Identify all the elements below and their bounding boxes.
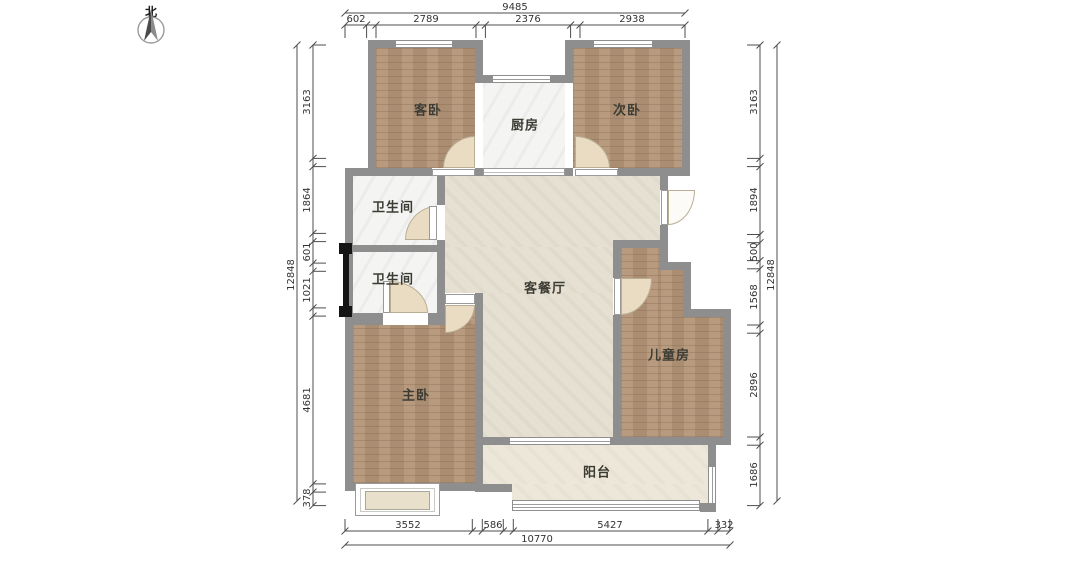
wall (618, 168, 690, 176)
bay-window-symbol (365, 491, 430, 510)
wall (353, 245, 437, 252)
floor-children-room (621, 248, 660, 437)
wall (437, 176, 445, 205)
dim-label: 10770 (521, 534, 553, 545)
door-leaf-guest-bedroom (432, 169, 475, 176)
wall (475, 437, 510, 445)
dim-label: 1686 (749, 462, 760, 487)
wall (437, 240, 445, 317)
dim-label: 601 (302, 242, 313, 261)
door-leaf-children-room (614, 278, 621, 315)
floor-living-dining (483, 293, 613, 437)
dim-label: 3163 (302, 89, 313, 114)
dim-label: 1894 (749, 187, 760, 212)
wall (428, 313, 445, 325)
floor-plan-canvas: 客卧 厨房 次卧 卫生间 卫生间 客餐厅 主卧 儿童房 阳台 北 9485 60… (0, 0, 1074, 576)
dim-label: 2789 (413, 14, 438, 25)
dim-label: 2376 (515, 14, 540, 25)
room-label-children-room: 儿童房 (648, 345, 690, 364)
wall (660, 225, 668, 248)
entry-door-icon (339, 306, 352, 317)
room-label-second-bedroom: 次卧 (613, 100, 641, 119)
wall (610, 437, 731, 445)
compass-north-label: 北 (145, 4, 157, 19)
door-leaf-living-east (661, 190, 668, 225)
floor-children-room (683, 317, 723, 437)
window-symbol (510, 437, 610, 445)
wall (475, 293, 483, 445)
dim-label: 12848 (766, 259, 777, 291)
dim-label: 5427 (597, 520, 622, 531)
room-label-master-bedroom: 主卧 (402, 385, 430, 404)
dim-label: 500 (749, 242, 760, 261)
door-leaf-master-bedroom (445, 294, 475, 304)
room-label-kitchen: 厨房 (511, 115, 539, 134)
wall (682, 48, 690, 176)
wall (368, 48, 376, 176)
wall (565, 168, 573, 176)
floor-master-bedroom (353, 325, 475, 483)
dim-label: 1021 (302, 277, 313, 302)
dim-label: 3552 (395, 520, 420, 531)
dim-label: 1864 (302, 187, 313, 212)
room-label-bathroom-upper: 卫生间 (372, 197, 414, 216)
entry-door-icon (343, 253, 349, 306)
door-swing-living-east (668, 190, 695, 225)
wall (723, 309, 731, 445)
wall (345, 483, 355, 491)
room-label-guest-bedroom: 客卧 (414, 100, 442, 119)
compass-icon: 北 (138, 4, 164, 43)
dim-label: 378 (302, 488, 313, 507)
room-label-living-dining: 客餐厅 (524, 278, 566, 297)
wall (660, 176, 668, 190)
room-label-balcony: 阳台 (583, 462, 611, 481)
wall (700, 503, 716, 512)
dim-label: 4681 (302, 387, 313, 412)
window-symbol (512, 500, 700, 511)
dim-label: 332 (714, 520, 733, 531)
dim-label: 2938 (619, 14, 644, 25)
window-symbol (594, 40, 652, 48)
wall (475, 168, 483, 176)
wall (475, 484, 512, 492)
window-symbol (708, 467, 716, 503)
wall (613, 248, 621, 278)
floor-living-dining (445, 176, 660, 247)
wall (345, 176, 353, 491)
dim-label: 2896 (749, 372, 760, 397)
dim-label: 12848 (286, 259, 297, 291)
sliding-door-kitchen (483, 168, 565, 176)
dim-label: 1568 (749, 284, 760, 309)
wall (613, 315, 621, 437)
door-leaf-bathroom-upper (429, 206, 437, 240)
dim-label: 3163 (749, 89, 760, 114)
window-symbol (396, 40, 452, 48)
door-leaf-second-bedroom (575, 169, 618, 176)
window-symbol (493, 75, 550, 83)
dim-label: 602 (346, 14, 365, 25)
dim-label: 586 (483, 520, 502, 531)
dim-label: 9485 (502, 2, 527, 13)
wall (345, 168, 432, 176)
room-label-bathroom-lower: 卫生间 (372, 269, 414, 288)
